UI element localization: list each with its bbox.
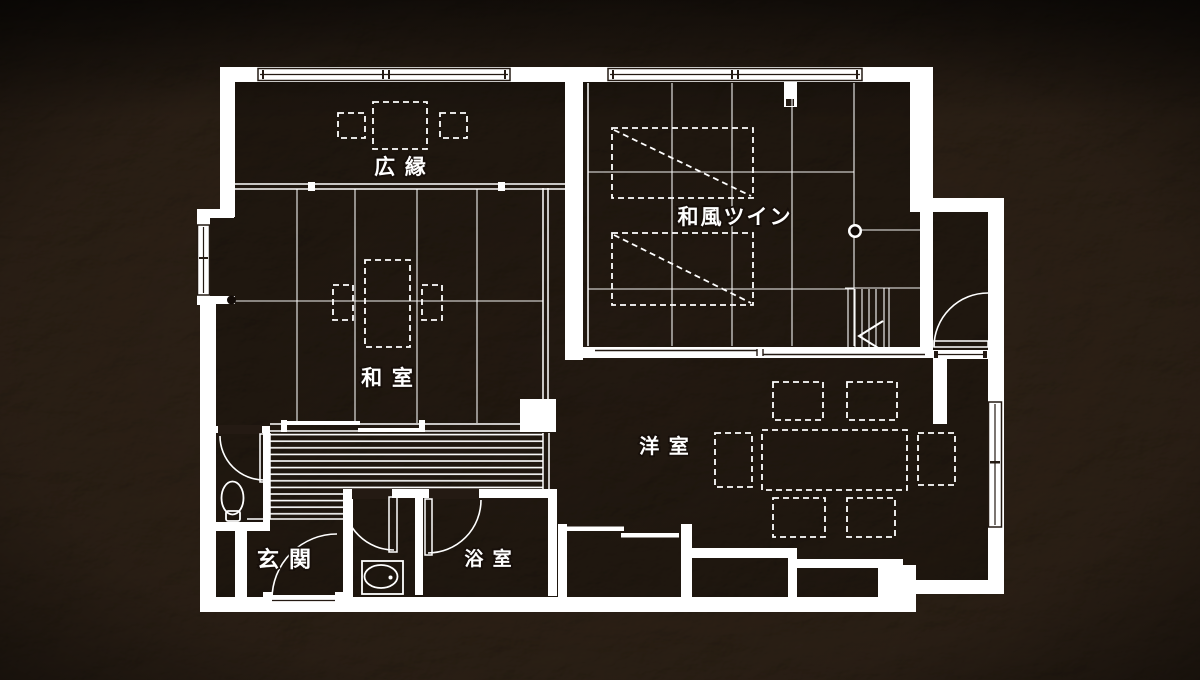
pillar-duct-core [786,99,794,106]
room-label-genkan: 玄 関 [257,547,313,572]
room-label-wafu-twin: 和風ツイン [678,206,793,229]
room-label-youshitsu: 洋 室 [639,434,691,458]
window-left [198,225,210,295]
floor-plan-svg: 広 縁 和風ツイン 和 室 洋 室 玄 関 浴 室 [0,0,1200,680]
pillar-dot [851,227,860,236]
room-label-yokushitsu: 浴 室 [464,547,513,570]
room-label-hiroen: 広 縁 [374,155,428,179]
room-label-washitsu: 和 室 [361,366,415,390]
window-top-left [258,69,510,81]
floor-plan-stage: 広 縁 和風ツイン 和 室 洋 室 玄 関 浴 室 [0,0,1200,680]
leather-background [0,0,1200,680]
pillar-dot [227,296,236,305]
window-top-right [608,69,862,81]
window-right [989,402,1002,527]
